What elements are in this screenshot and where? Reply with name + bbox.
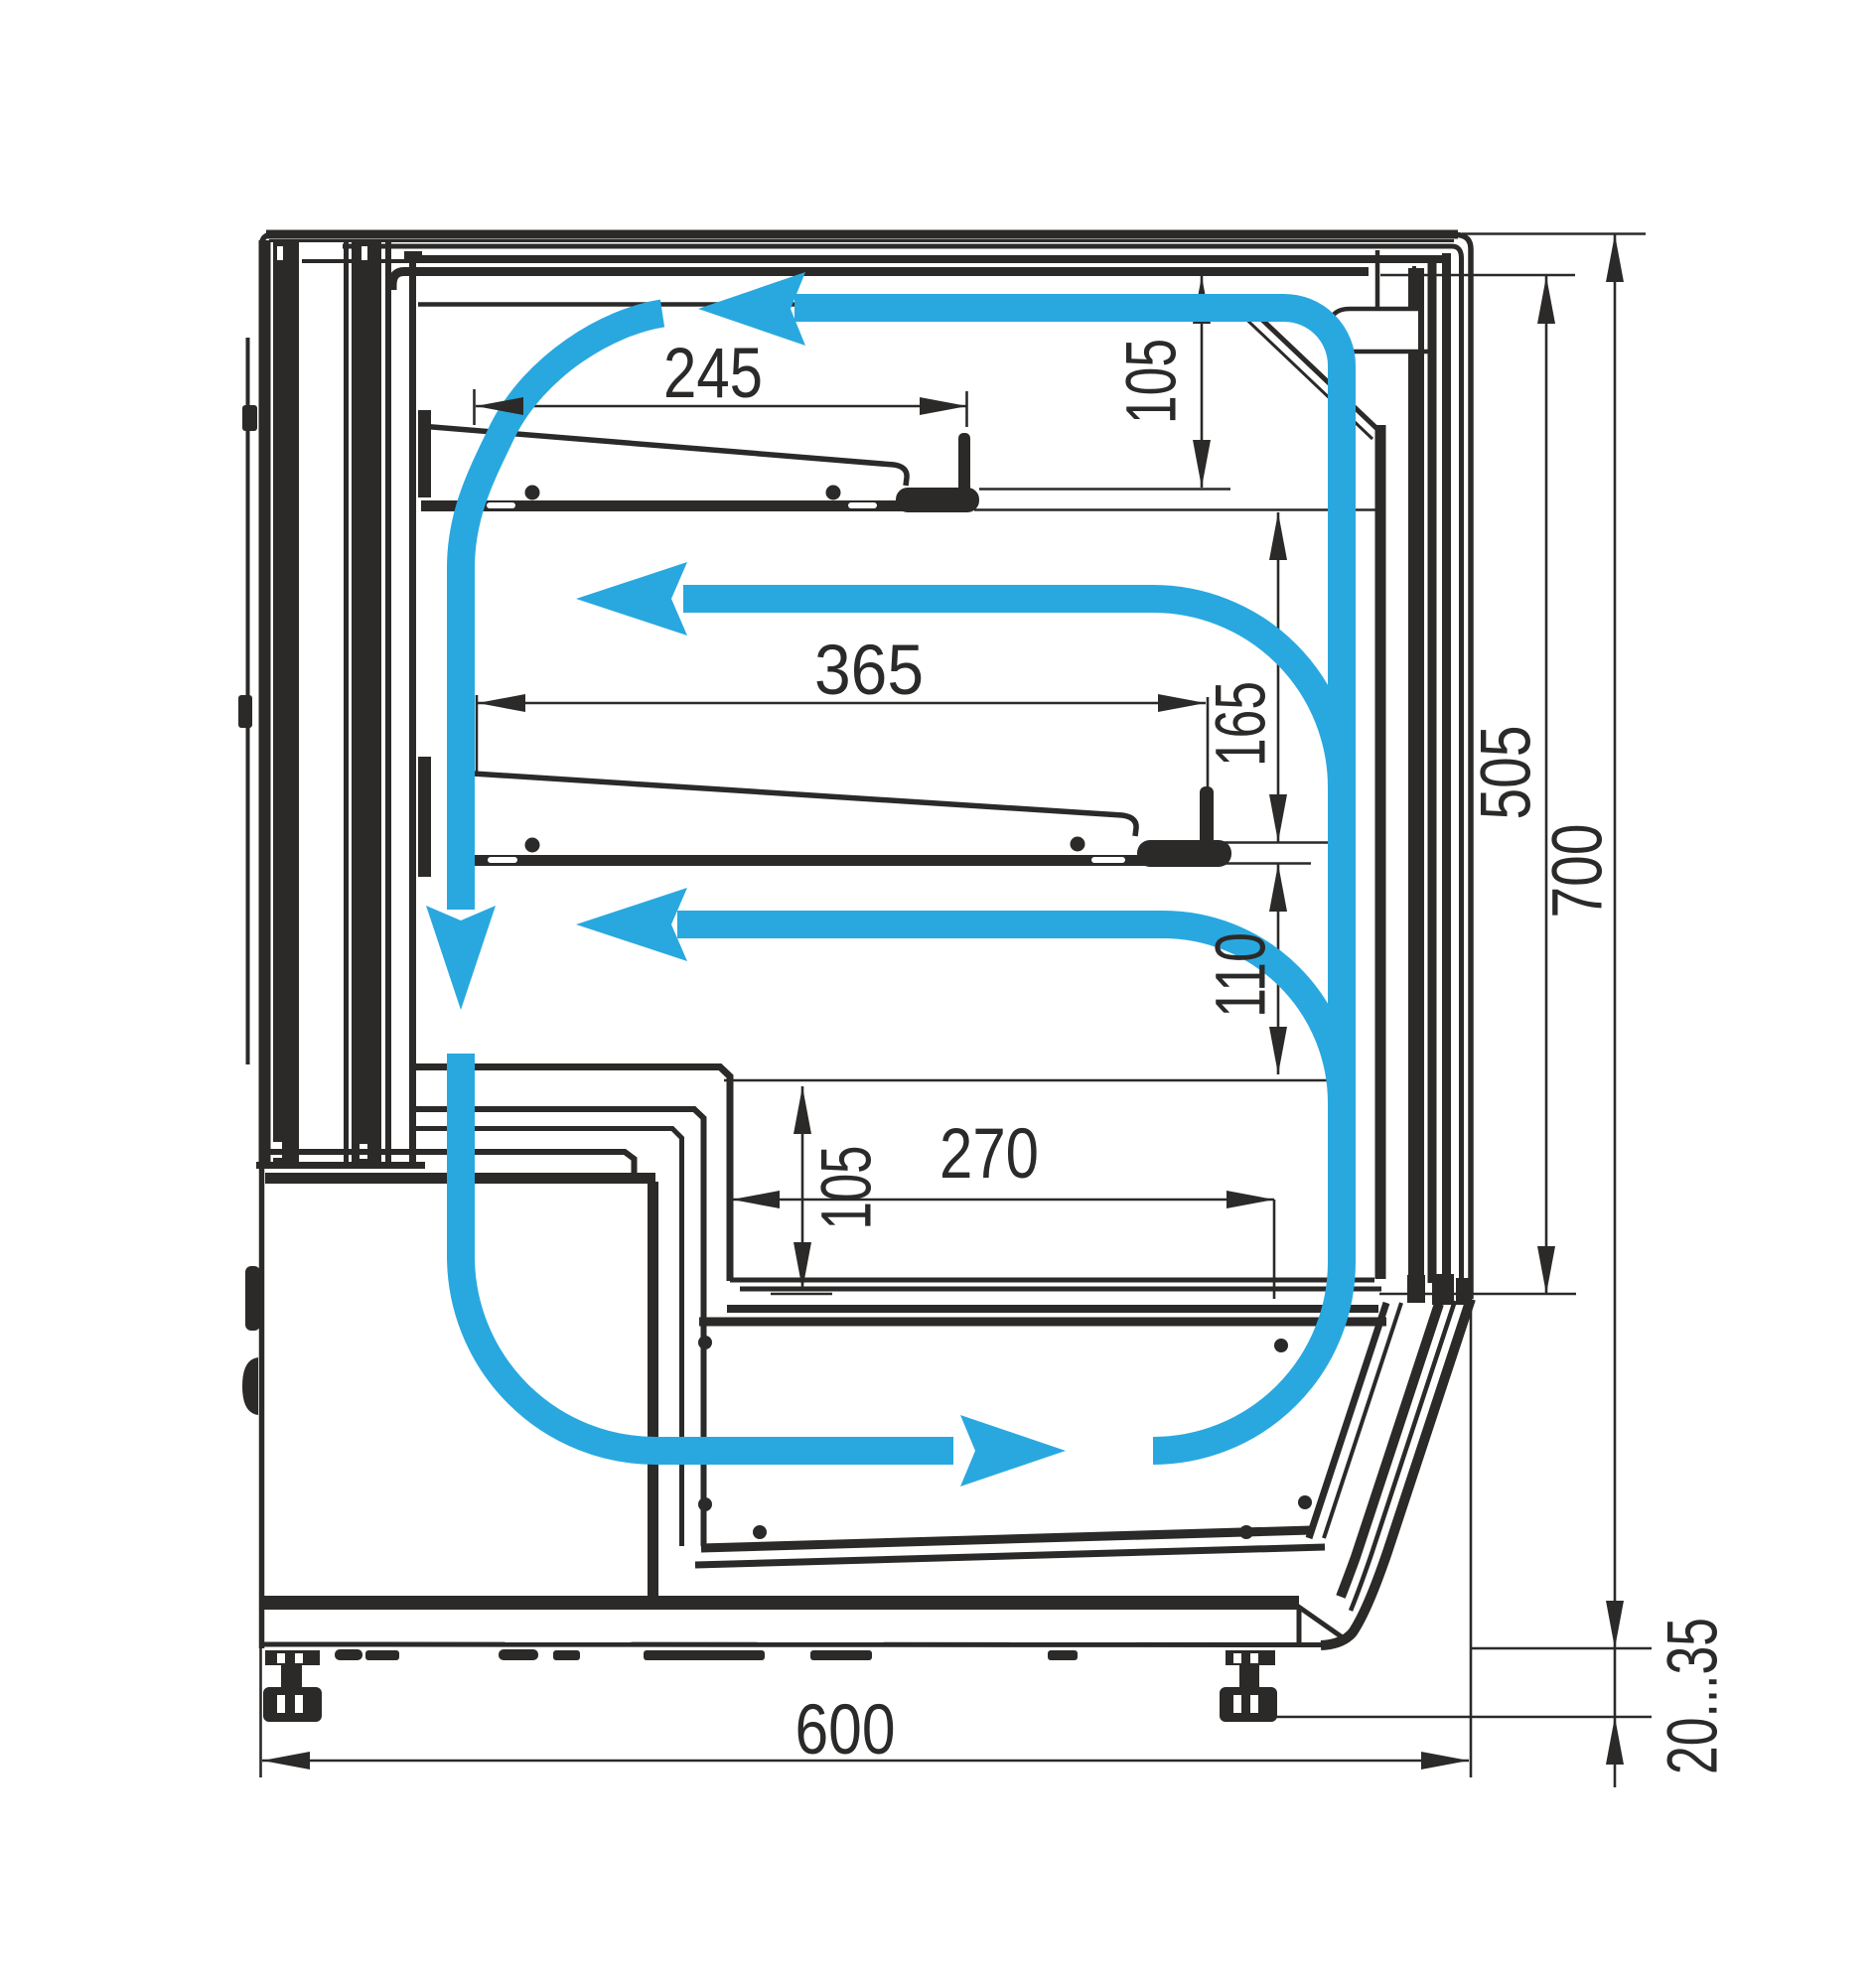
svg-text:700: 700: [1539, 824, 1618, 919]
svg-text:505: 505: [1468, 726, 1546, 820]
svg-text:245: 245: [663, 335, 763, 413]
svg-text:165: 165: [1203, 681, 1281, 767]
svg-text:600: 600: [795, 1691, 896, 1769]
svg-text:20...35: 20...35: [1655, 1618, 1733, 1774]
svg-text:110: 110: [1203, 932, 1281, 1018]
svg-text:105: 105: [808, 1146, 887, 1230]
svg-text:365: 365: [814, 632, 924, 710]
svg-text:105: 105: [1113, 339, 1192, 424]
svg-text:270: 270: [939, 1115, 1039, 1194]
